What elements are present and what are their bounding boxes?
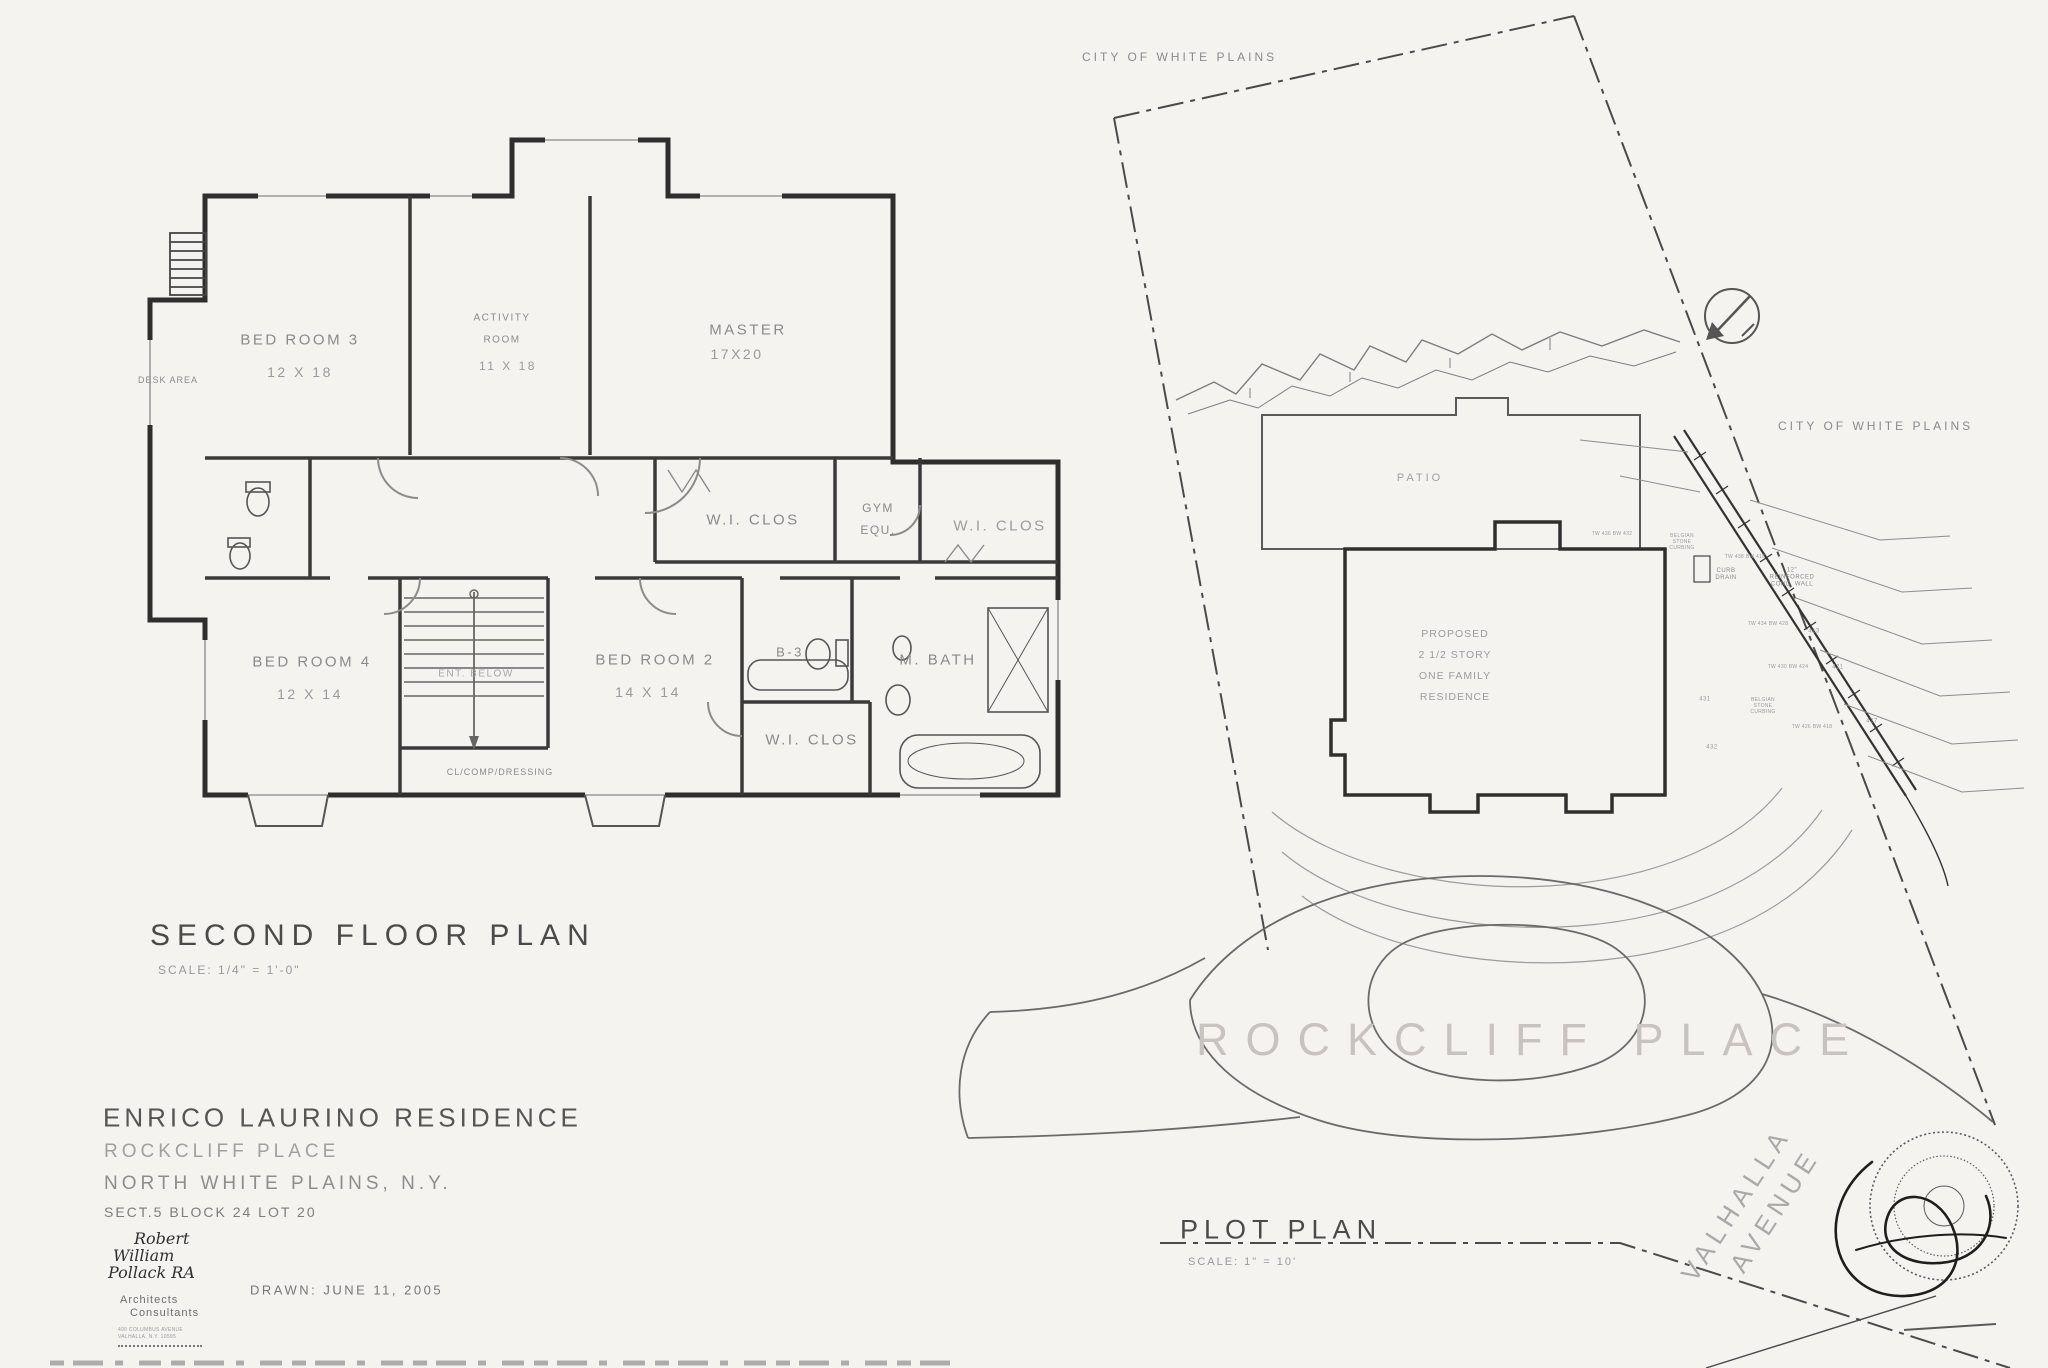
rock-ledge-lines [1176, 330, 1680, 414]
contour-label-421: 421 [1832, 665, 1844, 672]
residence-line-4: RESIDENCE [1418, 687, 1491, 708]
room-label-activity-2: ROOM [483, 335, 520, 346]
bath-fixtures [228, 482, 1048, 788]
architect-name-2: William [106, 1247, 195, 1264]
curbing-label-b3: CURBING [1750, 709, 1775, 715]
room-label-activity-1: ACTIVITY [473, 313, 530, 324]
room-label-bed4: BED ROOM 4 [252, 654, 371, 671]
retaining-wall [1674, 430, 1948, 886]
city-label-right: CITY OF WHITE PLAINS [1778, 419, 1973, 433]
room-dims-master: 17X20 [711, 346, 764, 362]
project-street: ROCKCLIFF PLACE [104, 1141, 339, 1163]
residence-line-3: ONE FAMILY [1418, 666, 1491, 687]
chimney-hatch [170, 233, 206, 295]
label-desk-area: DESK AREA [138, 375, 198, 385]
curbing-label-a3: CURBING [1669, 545, 1694, 551]
residence-label: PROPOSED 2 1/2 STORY ONE FAMILY RESIDENC… [1418, 624, 1491, 708]
north-arrow-icon [1705, 289, 1759, 343]
curb-drain-label-2: DRAIN [1715, 575, 1736, 582]
tw-bw-label-5: TW 436 BW 432 [1592, 531, 1633, 537]
drawn-date: DRAWN: JUNE 11, 2005 [250, 1283, 443, 1298]
floor-plan-title: SECOND FLOOR PLAN [150, 919, 596, 953]
wall-note-3: CONC. WALL [1770, 582, 1815, 589]
project-city: NORTH WHITE PLAINS, N.Y. [104, 1173, 452, 1195]
architect-role-1: Architects [120, 1294, 178, 1306]
city-label-top: CITY OF WHITE PLAINS [1082, 50, 1277, 64]
architect-name-1: Robert [106, 1230, 195, 1247]
curb-drain-label-1: CURB [1715, 568, 1736, 575]
tw-bw-label-1: TW 438 BW 416 [1725, 554, 1766, 560]
project-title: ENRICO LAURINO RESIDENCE [103, 1103, 582, 1134]
room-dims-bed3: 12 X 18 [267, 364, 333, 380]
architect-logo: Robert William Pollack RA [106, 1230, 195, 1281]
contour-label-431: 431 [1699, 697, 1711, 704]
contour-lines [1272, 788, 1852, 963]
room-label-bed2: BED ROOM 2 [595, 652, 714, 669]
room-dims-activity: 11 X 18 [479, 359, 537, 373]
label-wic-upper-right: W.I. CLOS [953, 518, 1046, 535]
label-wic-lower: W.I. CLOS [765, 732, 858, 749]
plot-plan-scale: SCALE: 1" = 10' [1188, 1256, 1297, 1268]
floor-plan-interior-walls [205, 196, 1058, 795]
label-ent-below: ENT. BELOW [438, 669, 514, 680]
patio-label: PATIO [1397, 472, 1443, 484]
property-boundary [1114, 16, 2010, 1368]
architect-name-3: Pollack RA [106, 1264, 195, 1281]
label-bath3: B-3 [776, 645, 804, 660]
blueprint-sheet: BED ROOM 3 12 X 18 DESK AREA ACTIVITY RO… [0, 0, 2048, 1368]
project-lot: SECT.5 BLOCK 24 LOT 20 [104, 1204, 317, 1220]
residence-line-2: 2 1/2 STORY [1418, 645, 1491, 666]
label-wic-upper-left: W.I. CLOS [706, 512, 799, 529]
label-gym-2: EQU. [860, 523, 895, 537]
label-gym-1: GYM [862, 501, 894, 515]
label-dressing: CL/COMP/DRESSING [447, 767, 554, 777]
floor-plan-drawing [150, 140, 1058, 826]
road-rockcliff-place [959, 876, 1993, 1139]
door-arcs [378, 458, 984, 736]
label-master-bath: M. BATH [899, 652, 976, 669]
floor-plan-scale: SCALE: 1/4" = 1'-0" [158, 963, 301, 977]
room-dims-bed2: 14 X 14 [615, 684, 681, 700]
contour-label-427: 427 [1866, 719, 1878, 726]
house-outline [1331, 522, 1665, 812]
street-name-rockcliff: ROCKCLIFF PLACE [1196, 1014, 1866, 1066]
room-dims-bed4: 12 X 14 [277, 686, 343, 702]
contour-label-432: 432 [1706, 745, 1718, 752]
architect-address-2: VALHALLA, N.Y. 10595 [118, 1334, 176, 1340]
patio-outline [1262, 398, 1640, 549]
tw-bw-label-2: TW 434 BW 428 [1748, 621, 1789, 627]
tw-bw-label-4: TW 426 BW 418 [1792, 724, 1833, 730]
architect-phone-illegible [118, 1345, 202, 1347]
plot-plan-title: PLOT PLAN [1180, 1215, 1382, 1246]
room-label-master: MASTER [709, 322, 787, 339]
residence-line-1: PROPOSED [1418, 624, 1491, 645]
room-label-bed3: BED ROOM 3 [240, 332, 359, 349]
tw-bw-label-3: TW 430 BW 424 [1768, 664, 1809, 670]
architect-address-1: 400 COLUMBUS AVENUE [118, 1327, 183, 1333]
architect-role-2: Consultants [130, 1307, 199, 1319]
contour-label-413: 413 [1808, 629, 1820, 636]
wall-note-2: REINFORCED [1770, 575, 1815, 582]
wall-note-1: 12" [1770, 568, 1815, 575]
floor-plan-windows [150, 140, 1058, 826]
